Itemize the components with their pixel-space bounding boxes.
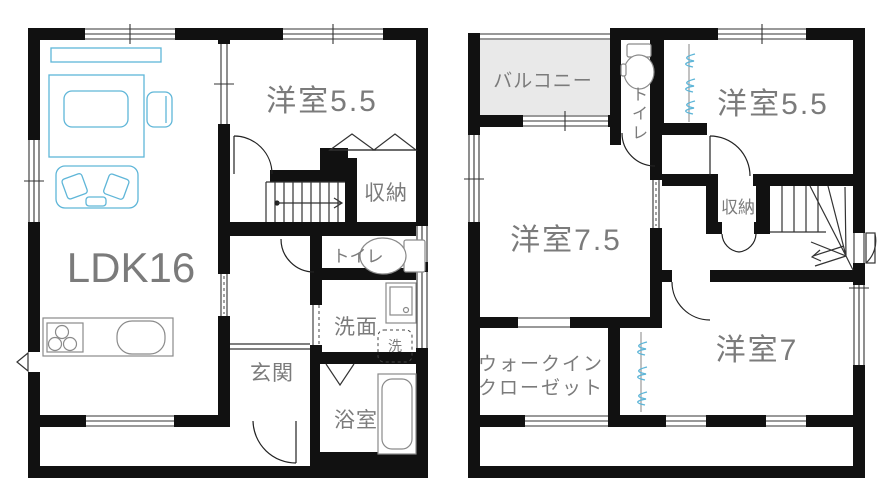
casement-window <box>853 233 876 263</box>
bath-folding-door <box>326 364 354 385</box>
floor1-furniture <box>49 48 172 208</box>
sliding-door <box>214 44 234 124</box>
window <box>24 140 44 222</box>
floor2-stairs <box>770 186 853 270</box>
label-toilet-char-2: イ <box>632 106 648 123</box>
label-washer: 洗 <box>388 338 402 354</box>
toilet-door <box>281 239 314 272</box>
label-balcony: バルコニー <box>493 71 593 92</box>
window <box>416 272 428 348</box>
bedroom-door <box>234 136 272 174</box>
window <box>86 415 174 427</box>
label-toilet-char-1: ト <box>632 87 648 104</box>
tv-board <box>51 48 161 62</box>
toilet-fixture <box>621 44 654 89</box>
floor1-stairs <box>266 182 345 222</box>
label-storage: 収納 <box>364 182 408 205</box>
window <box>849 285 869 365</box>
bedroom7-door <box>672 282 710 320</box>
bedroom55-door <box>710 136 750 176</box>
label-western-room-75: 洋室7.5 <box>510 224 622 257</box>
floor-plan-canvas: LDK16 洋室5.5 収納 トイレ 玄関 洗面 洗 浴室 <box>0 0 895 500</box>
floor-plan-svg: LDK16 洋室5.5 収納 トイレ 玄関 洗面 洗 浴室 <box>0 0 895 500</box>
window <box>666 415 706 427</box>
pocket-door <box>310 305 322 345</box>
label-storage-f2: 収納 <box>721 198 755 217</box>
room7-hanger-pole <box>638 332 647 412</box>
kitchen-back-door <box>17 352 40 372</box>
closet-folding-door <box>330 134 416 150</box>
chair <box>147 92 172 127</box>
floor2-plan: バルコニー ト イ レ 洋室5.5 洋室7.5 収納 ウォークイン クローゼット… <box>464 24 876 478</box>
entrance-door <box>253 421 296 463</box>
window <box>464 135 484 222</box>
washbasin <box>386 283 416 323</box>
sofa <box>56 166 138 208</box>
label-western-room-7: 洋室7 <box>716 334 799 367</box>
kitchen-counter <box>43 318 173 356</box>
label-bathroom: 浴室 <box>334 409 378 432</box>
window <box>283 24 383 44</box>
floor2-doors <box>622 133 756 320</box>
entrance-step <box>230 344 310 349</box>
label-ldk: LDK16 <box>67 244 195 291</box>
window <box>518 317 570 328</box>
floor1-plan: LDK16 洋室5.5 収納 トイレ 玄関 洗面 洗 浴室 <box>17 24 428 478</box>
label-entrance: 玄関 <box>250 362 294 385</box>
storage-double-doors <box>722 234 756 252</box>
closet-hanger-pole <box>686 44 695 122</box>
label-toilet-char-3: レ <box>632 125 648 142</box>
label-toilet: トイレ <box>333 247 384 266</box>
window <box>766 415 806 427</box>
label-western-room-55: 洋室5.5 <box>266 85 378 118</box>
sliding-door <box>218 274 230 316</box>
window <box>718 24 806 44</box>
label-western-room-55-f2: 洋室5.5 <box>717 88 829 121</box>
rug <box>49 75 144 157</box>
window <box>85 24 175 44</box>
bathtub <box>378 374 416 454</box>
label-wic-line1: ウォークイン <box>478 353 604 375</box>
table <box>64 91 128 127</box>
label-washroom: 洗面 <box>334 316 378 339</box>
label-wic-line2: クローゼット <box>478 377 604 399</box>
sliding-door <box>650 180 662 228</box>
window <box>525 415 608 427</box>
